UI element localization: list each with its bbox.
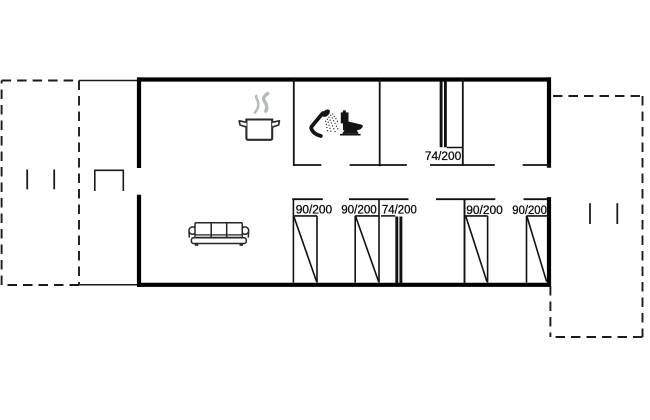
svg-text:74/200: 74/200	[425, 149, 461, 163]
svg-text:90/200: 90/200	[512, 203, 547, 217]
svg-text:90/200: 90/200	[341, 203, 377, 217]
svg-text:90/200: 90/200	[466, 203, 503, 217]
svg-text:74/200: 74/200	[382, 203, 417, 217]
svg-text:90/200: 90/200	[296, 203, 333, 217]
